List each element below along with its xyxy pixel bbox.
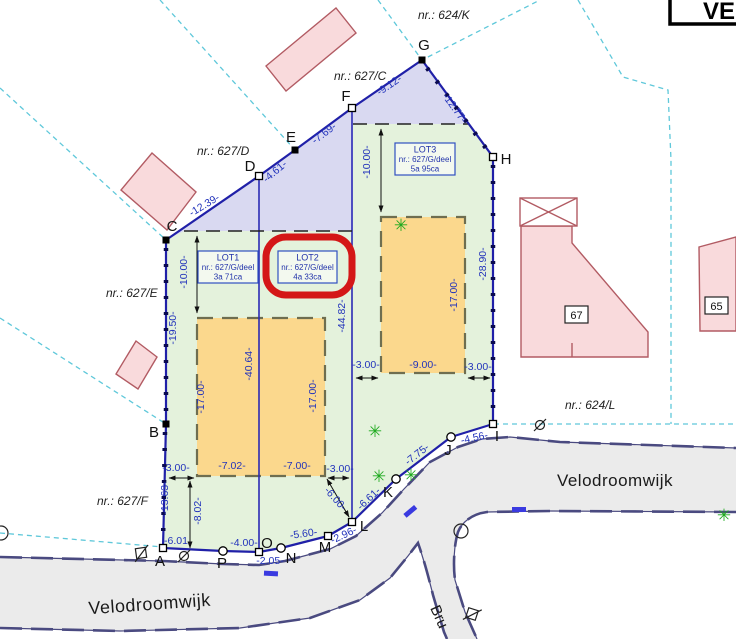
point-label: P <box>217 555 227 572</box>
dimension-label: -3.00- <box>326 463 354 475</box>
point-marker <box>447 433 455 441</box>
point-marker <box>349 519 356 526</box>
dimension-label: -10.00- <box>178 255 190 289</box>
parcel-number-label: nr.: 627/C <box>334 69 387 83</box>
point-marker <box>256 173 263 180</box>
lot3-name: LOT3 <box>414 145 437 155</box>
point-marker <box>277 544 285 552</box>
point-label: H <box>501 151 512 168</box>
dimension-label: -40.64- <box>243 347 255 381</box>
dimension-label: -2.05- <box>256 555 284 567</box>
point-marker <box>219 547 227 555</box>
tree-icon: ✳ <box>368 422 382 441</box>
street-mark <box>264 571 278 577</box>
dimension-label: -10.00- <box>361 145 373 179</box>
lot3-label-box: LOT3 nr.: 627/G/deel 5a 95ca <box>395 143 455 175</box>
dimension-label: -9.00- <box>409 359 437 371</box>
street-name-velodroomwijk-right: Velodroomwijk <box>557 471 673 490</box>
lot1-name: LOT1 <box>217 253 240 263</box>
point-marker <box>419 57 426 64</box>
dimension-label: -6.01 <box>164 535 188 547</box>
dimension-label: -3.00- <box>162 462 190 474</box>
point-label: G <box>418 37 430 54</box>
house-number-label: 67 <box>570 310 582 322</box>
point-label: E <box>286 129 296 146</box>
point-label: B <box>149 424 159 441</box>
point-marker <box>392 475 400 483</box>
point-label: D <box>245 158 256 175</box>
dimension-label: -4.00- <box>230 537 258 549</box>
point-marker <box>160 545 167 552</box>
point-label: O <box>261 535 273 552</box>
dimension-label: -28.90- <box>477 247 489 281</box>
dimension-label: -7.02- <box>218 460 246 472</box>
point-label: I <box>495 428 499 445</box>
lot1-label-box: LOT1 nr.: 627/G/deel 3a 71ca <box>198 251 258 283</box>
lot2-label-box: LOT2 nr.: 627/G/deel 4a 33ca <box>278 251 337 283</box>
point-label: K <box>383 484 393 501</box>
tree-icon: ✳ <box>394 216 408 235</box>
parcel-number-label: nr.: 627/E <box>106 286 159 300</box>
dimension-label: -44.82- <box>336 299 348 333</box>
point-label: N <box>286 550 297 567</box>
lot3-nr: nr.: 627/G/deel <box>399 155 452 164</box>
dimension-label: -3.00- <box>464 361 492 373</box>
dimension-label: -19.50- <box>167 311 179 345</box>
street-mark <box>512 507 526 512</box>
building-65 <box>699 237 736 331</box>
point-marker <box>163 237 170 244</box>
lot2-name: LOT2 <box>296 253 319 263</box>
lot2-area: 4a 33ca <box>293 273 322 282</box>
dimension-label: -8.02- <box>192 497 204 525</box>
point-marker <box>490 154 497 161</box>
dimension-label: -13.63- <box>159 481 171 515</box>
point-label: M <box>319 539 332 556</box>
point-marker <box>163 421 170 428</box>
tree-icon: ✳ <box>717 506 731 525</box>
point-label: J <box>444 442 452 459</box>
cadastral-plan: 67 65 LOT1 nr.: 627/G/deel 3a 71ca LOT2 … <box>0 0 736 639</box>
parcel-number-label: nr.: 627/D <box>197 144 250 158</box>
house-number-label: 65 <box>710 301 722 313</box>
lot3-area: 5a 95ca <box>411 165 440 174</box>
point-label: C <box>167 218 178 235</box>
tree-icon: ✳ <box>372 467 386 486</box>
house-number-67: 67 <box>565 306 588 323</box>
point-label: A <box>155 553 165 570</box>
dimension-label: -3.00- <box>352 359 380 371</box>
point-marker <box>490 421 497 428</box>
point-marker <box>349 105 356 112</box>
dimension-label: -7.00- <box>283 460 311 472</box>
house-number-65: 65 <box>705 297 728 314</box>
dimension-label: -17.00- <box>195 380 207 414</box>
parcel-number-label: nr.: 624/L <box>565 398 615 412</box>
title-text: VE <box>703 0 735 25</box>
parcel-number-label: nr.: 627/F <box>97 494 149 508</box>
dimension-label: -17.00- <box>448 278 460 312</box>
dimension-label: -17.00- <box>307 379 319 413</box>
point-marker <box>292 147 299 154</box>
tree-icon: ✳ <box>404 466 418 485</box>
lot1-nr: nr.: 627/G/deel <box>202 263 255 272</box>
point-label: L <box>360 518 368 535</box>
parcel-number-label: nr.: 624/K <box>418 8 471 22</box>
lot2-nr: nr.: 627/G/deel <box>281 263 334 272</box>
title-box: VE <box>670 0 736 25</box>
point-label: F <box>341 88 350 105</box>
lot1-area: 3a 71ca <box>214 273 243 282</box>
building-zone-lot1-lot2 <box>197 318 325 476</box>
